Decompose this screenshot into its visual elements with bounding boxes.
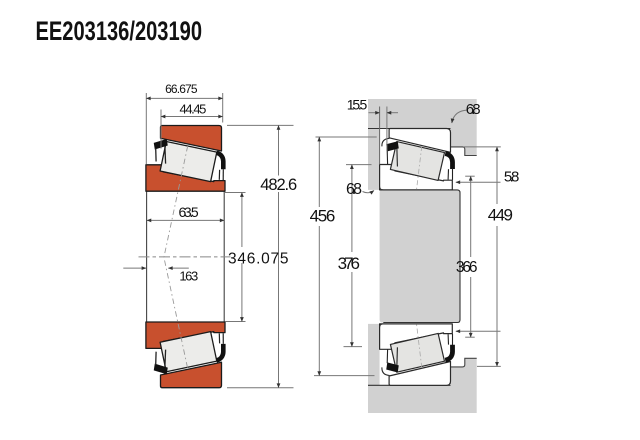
svg-text:366: 366 [456,259,478,276]
svg-text:6.8: 6.8 [346,181,362,198]
svg-text:346.075: 346.075 [228,251,289,268]
svg-text:63.5: 63.5 [179,204,199,220]
svg-text:456: 456 [310,206,336,225]
svg-text:66.675: 66.675 [165,82,198,96]
svg-text:44.45: 44.45 [180,102,207,117]
svg-text:482.6: 482.6 [260,176,297,194]
svg-text:EE203136/203190: EE203136/203190 [36,16,203,46]
svg-text:5.8: 5.8 [504,168,520,185]
svg-text:449: 449 [488,206,513,225]
svg-text:6.8: 6.8 [466,101,481,118]
svg-text:15.5: 15.5 [347,97,368,113]
svg-text:163: 163 [179,268,198,283]
svg-text:376: 376 [338,254,360,273]
